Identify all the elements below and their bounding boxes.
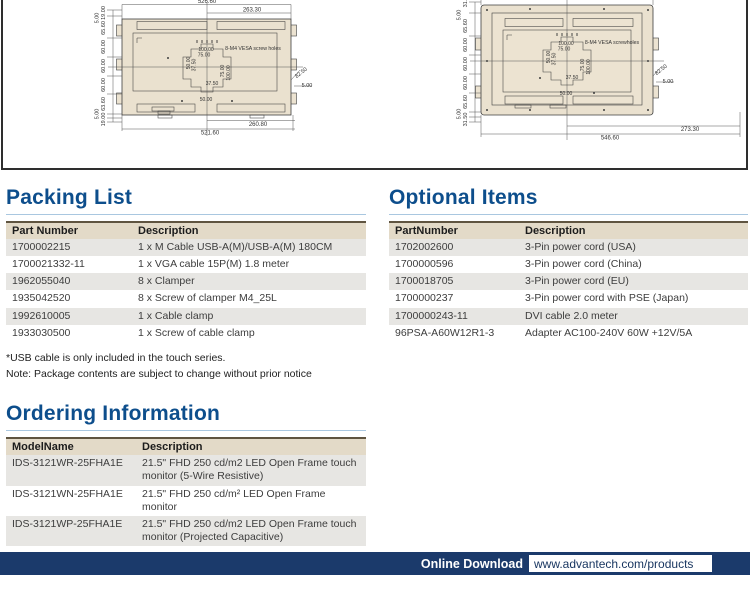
- column-header: Description: [136, 438, 366, 455]
- cell: Adapter AC100-240V 60W +12V/5A: [519, 325, 748, 342]
- dimension-label: 50.00: [200, 97, 213, 103]
- dimension-label: 273.30: [681, 127, 700, 133]
- dimension-label: 63.60: [101, 97, 107, 111]
- cell: 1700000243-11: [389, 308, 519, 325]
- cell: 3-Pin power cord (EU): [519, 273, 748, 290]
- ordering-information-title: Ordering Information: [6, 402, 366, 431]
- cell: 1700021332-11: [6, 256, 132, 273]
- table-row: 19926100051 x Cable clamp: [6, 308, 366, 325]
- dimension-label: 60.00: [101, 78, 107, 92]
- cell: 1 x Screw of cable clamp: [132, 325, 366, 342]
- cell: 8 x Screw of clamper M4_25L: [132, 290, 366, 307]
- table-row: IDS-3121WN-25FHA1E21.5" FHD 250 cd/m² LE…: [6, 486, 366, 516]
- dimension-label: 75.00: [558, 47, 571, 53]
- cell: IDS-3121WN-25FHA1E: [6, 486, 136, 516]
- download-url-link[interactable]: www.advantech.com/products: [529, 555, 712, 572]
- table-row: 96PSA-A60W12R1-3Adapter AC100-240V 60W +…: [389, 325, 748, 342]
- cell: 1702002600: [389, 239, 519, 256]
- cell: 1 x M Cable USB-A(M)/USB-A(M) 180CM: [132, 239, 366, 256]
- dimension-label: 31.5: [463, 0, 469, 7]
- dimension-label: 5.00: [95, 109, 101, 120]
- dimension-label: 50.00: [560, 91, 573, 97]
- dimension-label: 82.50: [654, 64, 669, 77]
- table-row: IDS-3121WP-25FHA1E21.5" FHD 250 cd/m2 LE…: [6, 516, 366, 546]
- rear-view-drawing-left: 526.60263.3019.005.0065.6060.0060.0060.0…: [95, 0, 313, 137]
- dimension-label: 19.00: [101, 6, 107, 20]
- dimension-label: 5.00: [663, 79, 674, 85]
- dimension-label: 5.00: [457, 10, 463, 21]
- rear-view-drawing-right: 31.55.0065.6060.0060.0060.0065.605.0031.…: [457, 0, 741, 142]
- column-header: PartNumber: [389, 222, 519, 239]
- dimension-label: 60.00: [463, 76, 469, 90]
- cell: DVI cable 2.0 meter: [519, 308, 748, 325]
- dimension-label: 260.80: [249, 122, 268, 128]
- dimension-label: 526.60: [198, 0, 217, 5]
- dimension-label: 8-M4 VESA screw holes: [225, 46, 281, 52]
- cell: IDS-3121WR-25FHA1E: [6, 455, 136, 485]
- dimension-label: 8-M4 VESA screwholes: [585, 40, 640, 46]
- column-header: Description: [519, 222, 748, 239]
- table-row: 1700000243-11DVI cable 2.0 meter: [389, 308, 748, 325]
- cell: 1933030500: [6, 325, 132, 342]
- column-header: Description: [132, 222, 366, 239]
- cell: 1935042520: [6, 290, 132, 307]
- dimension-label: 521.60: [201, 131, 220, 137]
- dimension-label: 65.60: [463, 95, 469, 109]
- left-column: Packing List Part NumberDescription17000…: [6, 186, 366, 546]
- cell: 1992610005: [6, 308, 132, 325]
- footer-bar: Online Download www.advantech.com/produc…: [0, 552, 750, 575]
- online-download-label: Online Download: [421, 557, 523, 571]
- right-column: Optional Items PartNumberDescription1702…: [389, 186, 748, 342]
- cell: 1700000237: [389, 290, 519, 307]
- cell: 21.5" FHD 250 cd/m2 LED Open Frame touch…: [136, 516, 366, 546]
- dimension-label: 75.00: [198, 53, 211, 59]
- cell: 3-Pin power cord (USA): [519, 239, 748, 256]
- column-header: ModelName: [6, 438, 136, 455]
- packing-note-contents: Note: Package contents are subject to ch…: [6, 367, 366, 383]
- dimension-label: 60.00: [463, 38, 469, 52]
- packing-list-title: Packing List: [6, 186, 366, 215]
- dimension-label: 37.50: [566, 75, 579, 81]
- table-row: 19330305001 x Screw of cable clamp: [6, 325, 366, 342]
- cell: 21.5" FHD 250 cd/m² LED Open Frame monit…: [136, 486, 366, 516]
- dimension-label: 263.30: [243, 8, 262, 14]
- dimension-label: 60.00: [101, 59, 107, 73]
- packing-note-usb: *USB cable is only included in the touch…: [6, 351, 366, 367]
- dimension-label: 546.60: [601, 136, 620, 142]
- cell: 1 x Cable clamp: [132, 308, 366, 325]
- cell: 96PSA-A60W12R1-3: [389, 325, 519, 342]
- dimension-label: 31.50: [463, 113, 469, 127]
- table-row: 17000187053-Pin power cord (EU): [389, 273, 748, 290]
- dimension-label: 65.60: [101, 21, 107, 35]
- cell: 8 x Clamper: [132, 273, 366, 290]
- dimension-label: 60.00: [101, 40, 107, 54]
- dimension-label: 19.00: [101, 113, 107, 127]
- cell: 1 x VGA cable 15P(M) 1.8 meter: [132, 256, 366, 273]
- packing-list-table: Part NumberDescription17000022151 x M Ca…: [6, 221, 366, 342]
- table-row: 17020026003-Pin power cord (USA): [389, 239, 748, 256]
- dimension-label: 5.00: [457, 109, 463, 120]
- dimension-drawings: 526.60263.3019.005.0065.6060.0060.0060.0…: [2, 0, 748, 168]
- table-row: 17000022151 x M Cable USB-A(M)/USB-A(M) …: [6, 239, 366, 256]
- cell: 1700002215: [6, 239, 132, 256]
- cell: IDS-3121WP-25FHA1E: [6, 516, 136, 546]
- table-row: 1700021332-111 x VGA cable 15P(M) 1.8 me…: [6, 256, 366, 273]
- dimension-label: 65.60: [463, 19, 469, 33]
- table-row: 17000005963-Pin power cord (China): [389, 256, 748, 273]
- cell: 1962055040: [6, 273, 132, 290]
- dimension-label: 60.00: [463, 57, 469, 71]
- dimension-label: 37.50: [192, 59, 198, 72]
- dimension-label: 100.00: [586, 59, 592, 75]
- table-row: 19620550408 x Clamper: [6, 273, 366, 290]
- optional-items-title: Optional Items: [389, 186, 748, 215]
- cell: 3-Pin power cord with PSE (Japan): [519, 290, 748, 307]
- cell: 21.5" FHD 250 cd/m2 LED Open Frame touch…: [136, 455, 366, 485]
- table-row: 17000002373-Pin power cord with PSE (Jap…: [389, 290, 748, 307]
- cell: 1700018705: [389, 273, 519, 290]
- table-row: 19350425208 x Screw of clamper M4_25L: [6, 290, 366, 307]
- dimension-label: 37.50: [552, 53, 558, 66]
- dimension-label: 5.00: [95, 13, 101, 24]
- dimension-label: 5.00: [302, 83, 313, 89]
- optional-items-table: PartNumberDescription17020026003-Pin pow…: [389, 221, 748, 342]
- ordering-information-table: ModelNameDescriptionIDS-3121WR-25FHA1E21…: [6, 437, 366, 546]
- cell: 1700000596: [389, 256, 519, 273]
- dimension-label: 37.50: [206, 81, 219, 87]
- dimension-label: 100.00: [226, 65, 232, 81]
- table-row: IDS-3121WR-25FHA1E21.5" FHD 250 cd/m2 LE…: [6, 455, 366, 485]
- column-header: Part Number: [6, 222, 132, 239]
- cell: 3-Pin power cord (China): [519, 256, 748, 273]
